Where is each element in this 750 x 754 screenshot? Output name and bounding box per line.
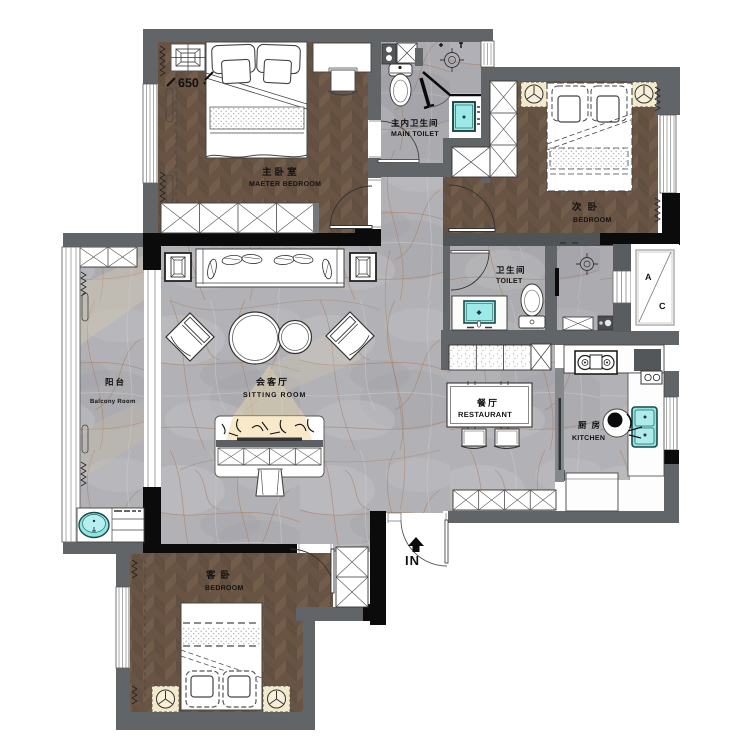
svg-text:次卧: 次卧 (572, 201, 603, 213)
svg-text:KITCHEN: KITCHEN (572, 435, 605, 442)
svg-text:厨房: 厨房 (578, 420, 605, 430)
svg-text:餐厅: 餐厅 (476, 398, 499, 408)
svg-text:SITTING ROOM: SITTING ROOM (243, 392, 306, 399)
svg-text:卫生间: 卫生间 (496, 265, 526, 275)
svg-text:650: 650 (178, 76, 199, 90)
svg-text:客卧: 客卧 (205, 569, 235, 581)
svg-text:Balcony Room: Balcony Room (90, 398, 136, 405)
svg-text:A: A (645, 272, 652, 282)
svg-text:BEDROOM: BEDROOM (573, 217, 612, 224)
svg-text:C: C (659, 301, 666, 311)
svg-text:MAETER BEDROOM: MAETER BEDROOM (249, 181, 321, 188)
svg-text:主内卫生间: 主内卫生间 (391, 118, 439, 128)
svg-text:阳台: 阳台 (105, 377, 126, 387)
svg-text:主卧室: 主卧室 (262, 166, 300, 178)
svg-text:MAIN TOILET: MAIN TOILET (391, 131, 439, 138)
svg-text:TOILET: TOILET (496, 278, 523, 285)
svg-text:会客厅: 会客厅 (255, 377, 289, 387)
svg-text:IN: IN (405, 553, 420, 568)
svg-text:RESTAURANT: RESTAURANT (458, 410, 512, 419)
svg-text:BEDROOM: BEDROOM (205, 585, 244, 592)
